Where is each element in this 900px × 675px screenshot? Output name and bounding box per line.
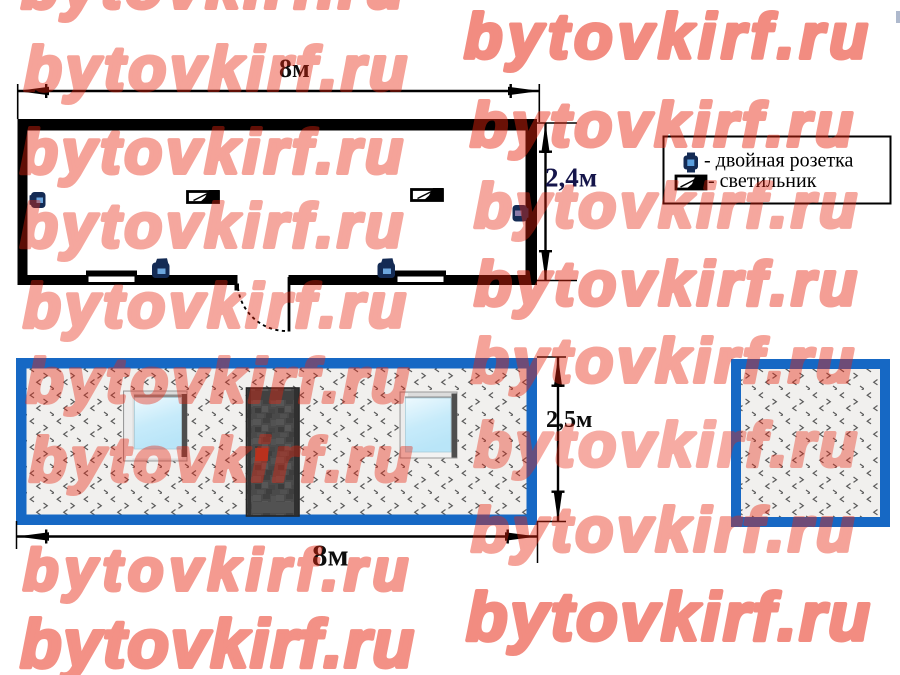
svg-text:bytovkirf.ru: bytovkirf.ru [474, 250, 861, 319]
svg-text:bytovkirf.ru: bytovkirf.ru [474, 172, 861, 241]
svg-text:bytovkirf.ru: bytovkirf.ru [466, 579, 872, 655]
svg-text:bytovkirf.ru: bytovkirf.ru [23, 538, 414, 603]
svg-text:bytovkirf.ru: bytovkirf.ru [21, 0, 408, 22]
svg-text:bytovkirf.ru: bytovkirf.ru [474, 411, 861, 480]
svg-text:bytovkirf.ru: bytovkirf.ru [26, 347, 413, 416]
svg-text:bytovkirf.ru: bytovkirf.ru [29, 426, 416, 495]
svg-text:bytovkirf.ru: bytovkirf.ru [20, 118, 407, 187]
svg-text:bytovkirf.ru: bytovkirf.ru [471, 496, 858, 565]
svg-text:bytovkirf.ru: bytovkirf.ru [20, 192, 407, 261]
svg-text:bytovkirf.ru: bytovkirf.ru [24, 35, 411, 104]
svg-text:bytovkirf.ru: bytovkirf.ru [20, 606, 416, 675]
svg-text:bytovkirf.ru: bytovkirf.ru [464, 2, 873, 72]
svg-text:bytovkirf.ru: bytovkirf.ru [470, 91, 857, 160]
svg-text:bytovkirf.ru: bytovkirf.ru [23, 272, 410, 341]
svg-text:bytovkirf.ru: bytovkirf.ru [471, 327, 858, 396]
